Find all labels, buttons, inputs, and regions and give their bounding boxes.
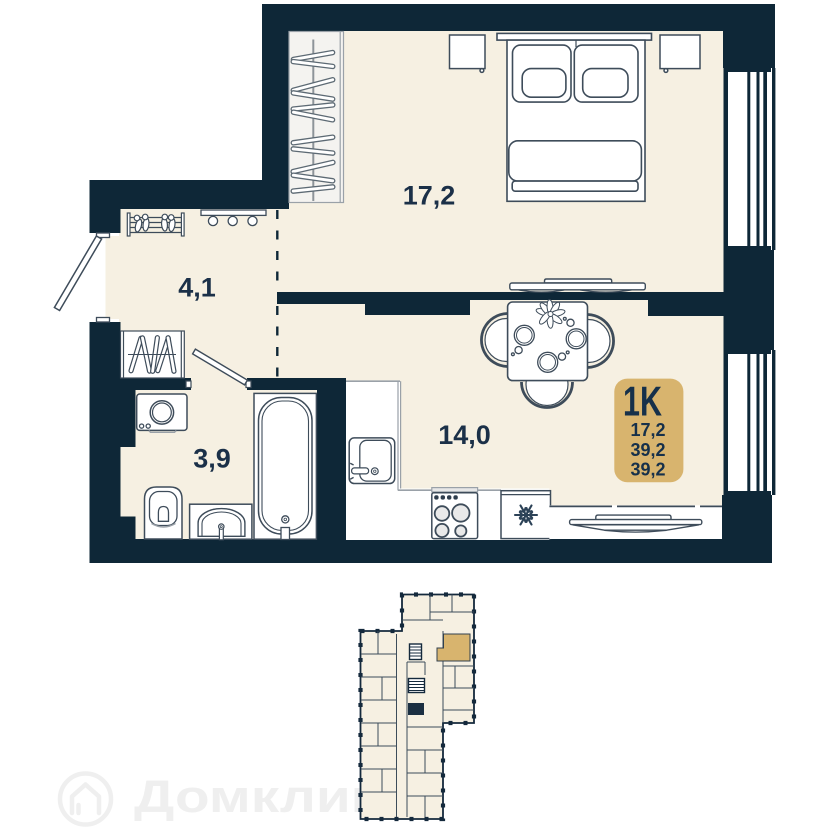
- svg-text:4,1: 4,1: [178, 273, 216, 303]
- svg-text:3,9: 3,9: [193, 444, 231, 474]
- svg-text:17,2: 17,2: [631, 420, 666, 440]
- svg-text:1K: 1K: [623, 378, 662, 425]
- svg-text:39,2: 39,2: [631, 440, 666, 460]
- svg-text:17,2: 17,2: [403, 181, 456, 211]
- svg-text:14,0: 14,0: [438, 420, 491, 450]
- svg-text:Домклик: Домклик: [134, 771, 380, 822]
- svg-text:39,2: 39,2: [631, 460, 666, 480]
